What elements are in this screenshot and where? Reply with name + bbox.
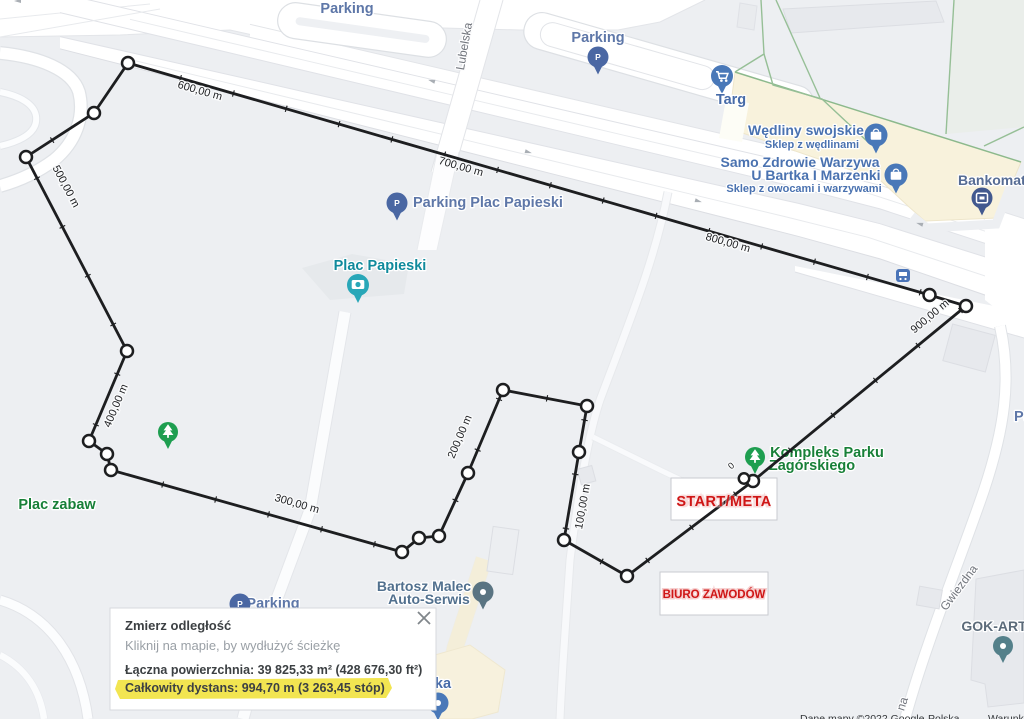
svg-text:Plac zabaw: Plac zabaw [18,497,96,513]
svg-text:Sklep z owocami i warzywami: Sklep z owocami i warzywami [726,183,881,195]
svg-text:U Bartka I Marzenki: U Bartka I Marzenki [751,167,880,183]
svg-text:Parking Plac Papieski: Parking Plac Papieski [413,195,563,211]
svg-text:Zagórskiego: Zagórskiego [769,458,855,474]
svg-text:ka: ka [435,676,452,692]
svg-text:Auto-Serwis: Auto-Serwis [388,591,470,607]
svg-text:Kliknij na mapie, by wydłużyć: Kliknij na mapie, by wydłużyć ścieżkę [125,638,340,653]
svg-text:Wędliny swojskie: Wędliny swojskie [748,122,864,138]
svg-text:Zmierz odległość: Zmierz odległość [125,618,231,633]
svg-text:Pa: Pa [1014,409,1024,425]
svg-text:Łączna powierzchnia: 39 825,33: Łączna powierzchnia: 39 825,33 m² (428 6… [125,663,422,677]
svg-text:Dane mapy ©2022 Google: Dane mapy ©2022 Google [800,713,925,719]
svg-text:Plac Papieski: Plac Papieski [334,258,427,274]
svg-text:BIURO ZAWODÓW: BIURO ZAWODÓW [663,588,766,601]
svg-text:P: P [394,198,400,208]
svg-text:Warunki: Warunki [988,713,1024,719]
svg-text:GOK-ART: GOK-ART [961,618,1024,634]
svg-text:Parking: Parking [571,30,624,46]
svg-text:Całkowity dystans: 994,70 m (3: Całkowity dystans: 994,70 m (3 263,45 st… [125,681,385,695]
svg-text:P: P [595,52,601,62]
svg-text:Targ: Targ [716,92,746,108]
svg-text:Sklep z wędlinami: Sklep z wędlinami [765,139,859,151]
svg-text:Parking: Parking [320,1,373,17]
svg-text:Bankomat: Bankomat [958,172,1024,188]
svg-text:Polska: Polska [928,713,960,719]
svg-text:START/META: START/META [676,494,771,510]
